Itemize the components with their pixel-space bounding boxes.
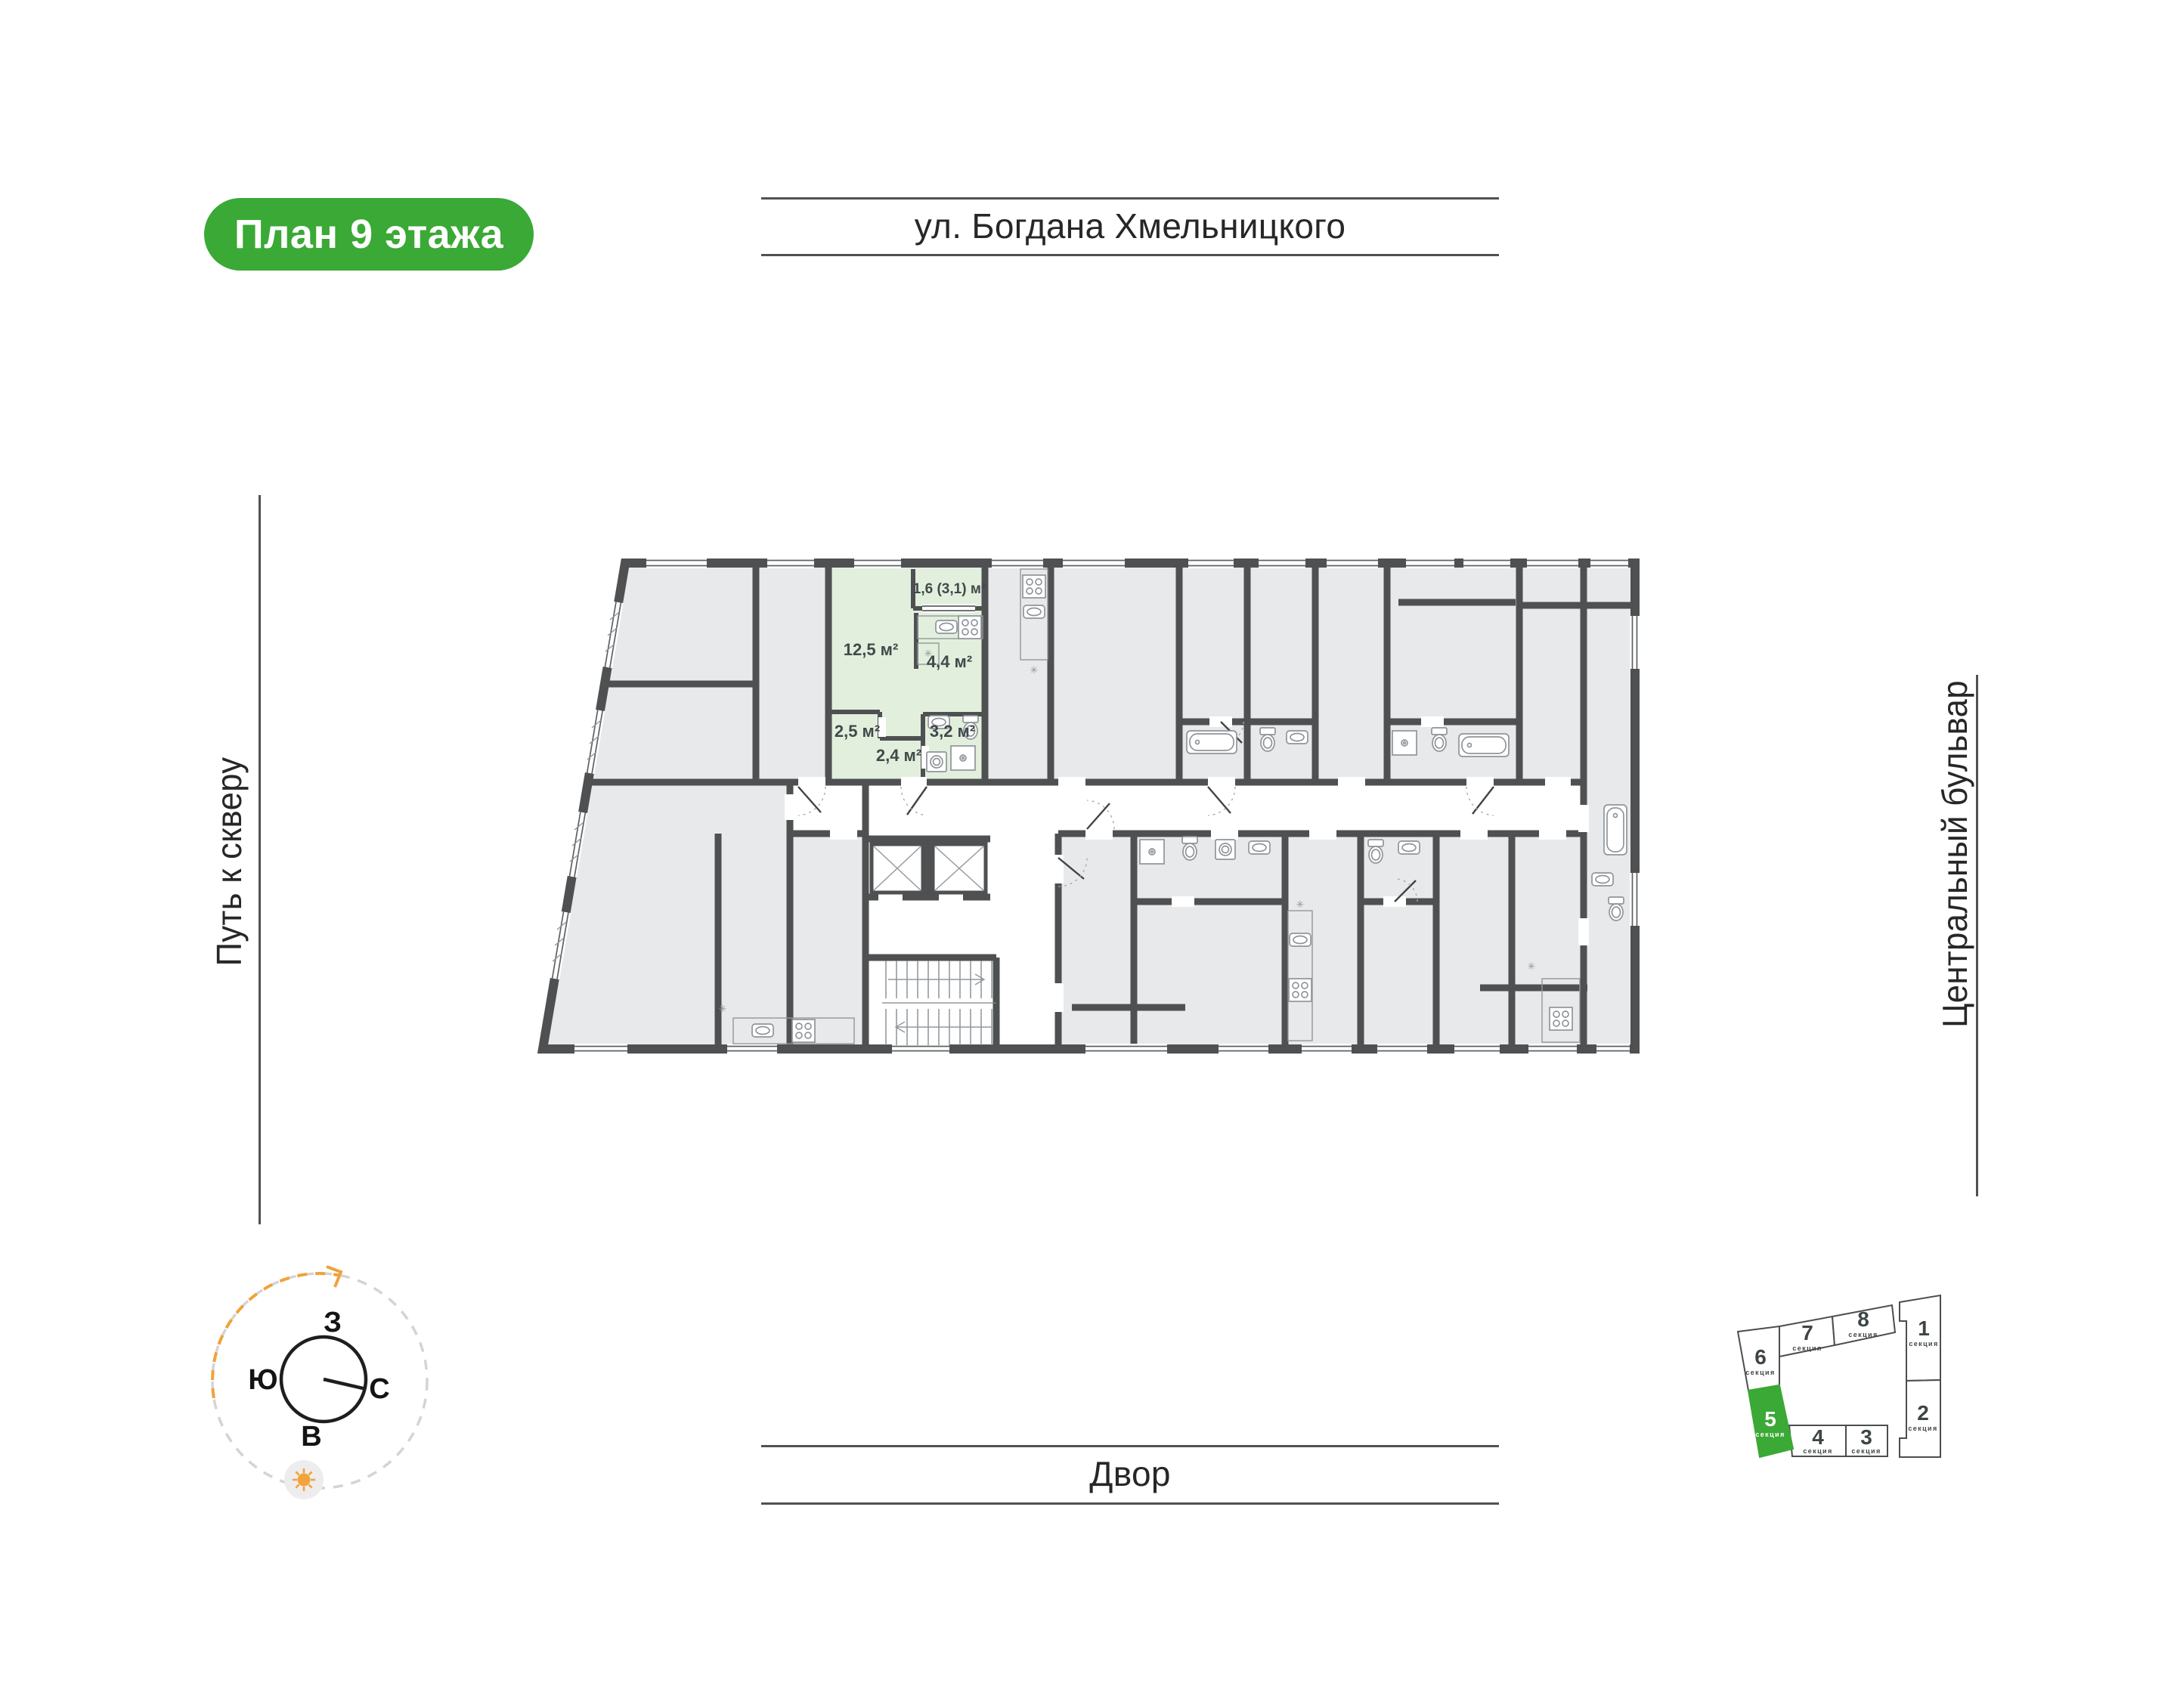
svg-text:секция: секция bbox=[1851, 1447, 1881, 1455]
compass-north: С bbox=[369, 1373, 389, 1405]
svg-text:секция: секция bbox=[1792, 1344, 1822, 1352]
floor-plan: ✳ ✳ bbox=[529, 555, 1663, 1054]
svg-text:секция: секция bbox=[1803, 1447, 1832, 1455]
street-bottom-line-lower bbox=[761, 1502, 1499, 1505]
street-top-line-lower bbox=[761, 254, 1499, 256]
svg-text:3: 3 bbox=[1860, 1425, 1872, 1449]
compass-west: З bbox=[324, 1307, 342, 1338]
floor-badge: План 9 этажа bbox=[204, 198, 534, 271]
main-corridor bbox=[790, 779, 1581, 837]
svg-text:5: 5 bbox=[1764, 1407, 1776, 1431]
svg-text:секция: секция bbox=[1755, 1431, 1785, 1438]
sun-path-arrow bbox=[327, 1267, 341, 1287]
label-living-area: 12,5 м² bbox=[844, 640, 899, 659]
compass: З Ю С В bbox=[204, 1247, 454, 1564]
label-balcony-area: 1,6 (3,1) м² bbox=[913, 581, 986, 597]
floor-badge-label: План 9 этажа bbox=[234, 211, 503, 258]
windows-bottom bbox=[574, 1044, 1630, 1054]
section-8[interactable]: 8 секция bbox=[1832, 1305, 1895, 1345]
svg-text:секция: секция bbox=[1909, 1340, 1938, 1348]
street-top-line-upper bbox=[761, 197, 1499, 200]
apartment-balcony-window bbox=[922, 604, 975, 613]
section-7[interactable]: 7 секция bbox=[1779, 1317, 1835, 1357]
compass-east: В bbox=[301, 1421, 321, 1453]
street-bottom-line-upper bbox=[761, 1445, 1499, 1447]
svg-text:1: 1 bbox=[1918, 1317, 1930, 1340]
section-6[interactable]: 6 секция bbox=[1738, 1326, 1779, 1391]
sun-icon bbox=[293, 1468, 315, 1491]
section-2[interactable]: 2 секция bbox=[1900, 1380, 1940, 1457]
svg-text:✳: ✳ bbox=[1528, 961, 1536, 973]
page-canvas: План 9 этажа ул. Богдана Хмельницкого Дв… bbox=[0, 0, 2177, 1708]
section-1[interactable]: 1 секция bbox=[1900, 1295, 1940, 1381]
street-right-line bbox=[1976, 675, 1978, 1196]
street-top-label: ул. Богдана Хмельницкого bbox=[761, 201, 1499, 251]
svg-text:секция: секция bbox=[1848, 1331, 1878, 1338]
svg-text:секция: секция bbox=[1908, 1425, 1937, 1432]
label-kitchen-area: 4,4 м² bbox=[927, 652, 972, 671]
svg-text:✳: ✳ bbox=[1296, 899, 1305, 911]
svg-text:7: 7 bbox=[1801, 1321, 1813, 1344]
svg-text:4: 4 bbox=[1812, 1425, 1824, 1449]
section-3[interactable]: 3 секция bbox=[1846, 1425, 1887, 1456]
section-5-active[interactable]: 5 секция bbox=[1748, 1385, 1793, 1457]
svg-text:2: 2 bbox=[1917, 1401, 1929, 1425]
svg-text:✳: ✳ bbox=[1030, 665, 1039, 676]
sections-map: 6 секция 7 секция 8 секция 1 секция 2 се… bbox=[1727, 1287, 1946, 1465]
label-hall-area: 2,5 м² bbox=[835, 722, 880, 741]
svg-text:секция: секция bbox=[1745, 1369, 1775, 1376]
label-corridor-area: 2,4 м² bbox=[876, 746, 921, 765]
street-bottom-label: Двор bbox=[761, 1449, 1499, 1499]
svg-text:8: 8 bbox=[1857, 1307, 1869, 1331]
compass-south: Ю bbox=[248, 1364, 277, 1396]
label-bathroom-area: 3,2 м² bbox=[930, 722, 975, 741]
street-left-line bbox=[259, 495, 261, 1224]
section-4[interactable]: 4 секция bbox=[1789, 1425, 1846, 1456]
street-right-label: Центральный бульвар bbox=[1934, 639, 1976, 1069]
svg-text:6: 6 bbox=[1754, 1345, 1767, 1369]
street-left-label: Путь к скверу bbox=[208, 646, 250, 1077]
svg-text:✳: ✳ bbox=[719, 1004, 727, 1015]
